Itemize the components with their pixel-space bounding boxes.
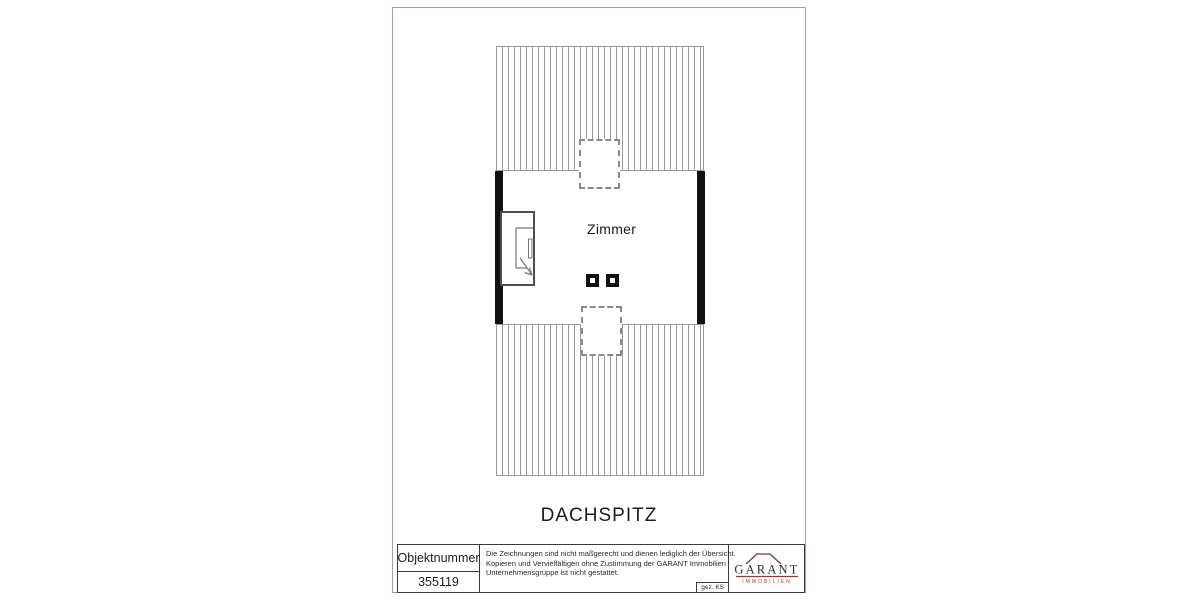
logo-cell: GARANT IMMOBILIEN <box>729 545 804 592</box>
disclaimer-line: Die Zeichnungen sind nicht maßgerecht un… <box>486 549 723 559</box>
logo-subtitle: IMMOBILIEN <box>742 579 791 585</box>
garant-immobilien-logo: GARANT IMMOBILIEN <box>733 551 801 587</box>
room-label: Zimmer <box>587 221 636 237</box>
floor-plan-title: DACHSPITZ <box>393 505 805 527</box>
logo-name: GARANT <box>734 562 799 576</box>
chimney-dashed-box-bottom <box>581 306 622 356</box>
object-number-value: 355119 <box>398 572 479 592</box>
drawn-by-box: gez. KS <box>696 582 728 592</box>
disclaimer-line: Kopieren und Vervielfältigen ohne Zustim… <box>486 559 723 569</box>
screenshot-canvas: Zimmer DACHSPITZ Objektnummer 355119 Die… <box>0 0 1200 600</box>
drawing-sheet: Zimmer DACHSPITZ Objektnummer 355119 Die… <box>392 7 806 593</box>
disclaimer-line: Unternehmensgruppe ist nicht gestattet. <box>486 568 723 578</box>
disclaimer-cell: Die Zeichnungen sind nicht maßgerecht un… <box>480 545 729 592</box>
chimney-flue-square-right <box>606 274 619 287</box>
object-number-cell: Objektnummer 355119 <box>398 545 480 592</box>
chimney-flue-square-left <box>586 274 599 287</box>
attic-ladder-symbol <box>499 209 537 289</box>
title-block: Objektnummer 355119 Die Zeichnungen sind… <box>397 544 805 593</box>
object-number-label: Objektnummer <box>398 545 479 572</box>
chimney-dashed-box-top <box>579 139 620 189</box>
wall-right <box>697 171 705 324</box>
